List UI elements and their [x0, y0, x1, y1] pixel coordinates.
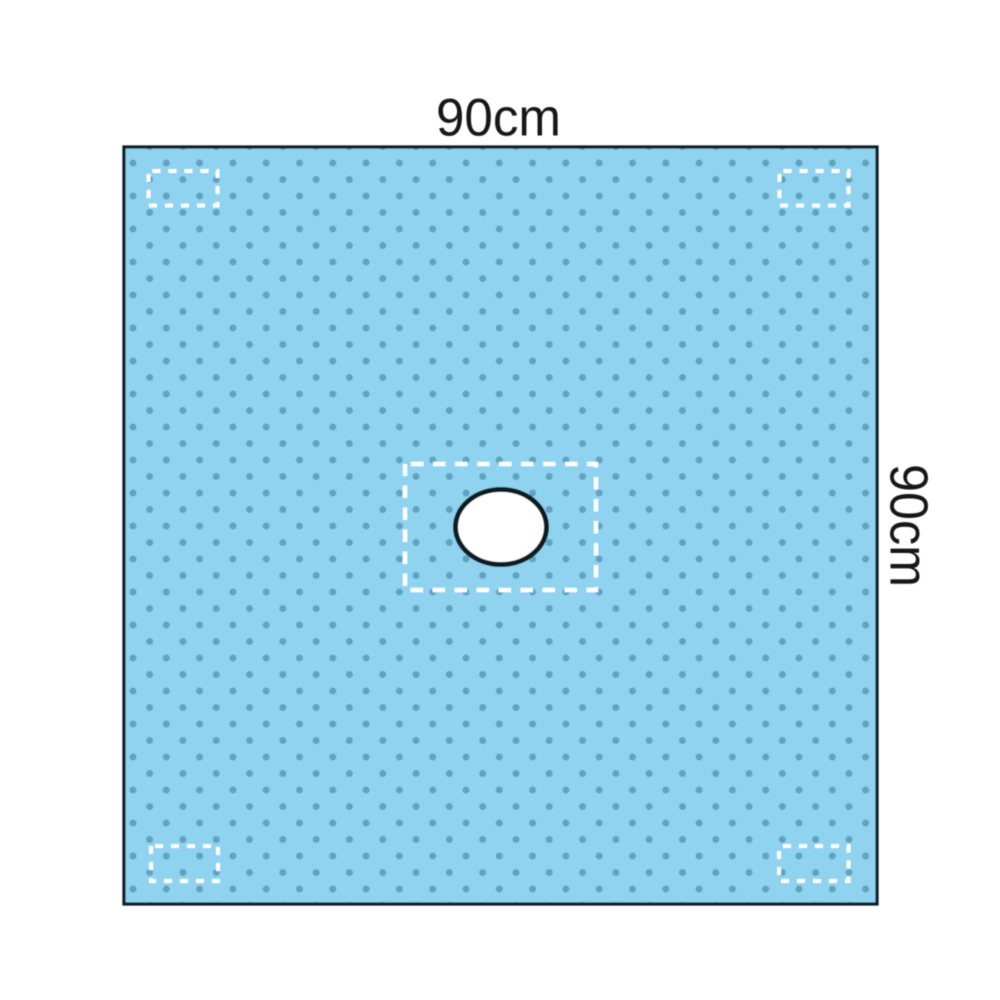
svg-text:90cm: 90cm	[879, 464, 939, 587]
svg-text:90cm: 90cm	[436, 89, 561, 148]
